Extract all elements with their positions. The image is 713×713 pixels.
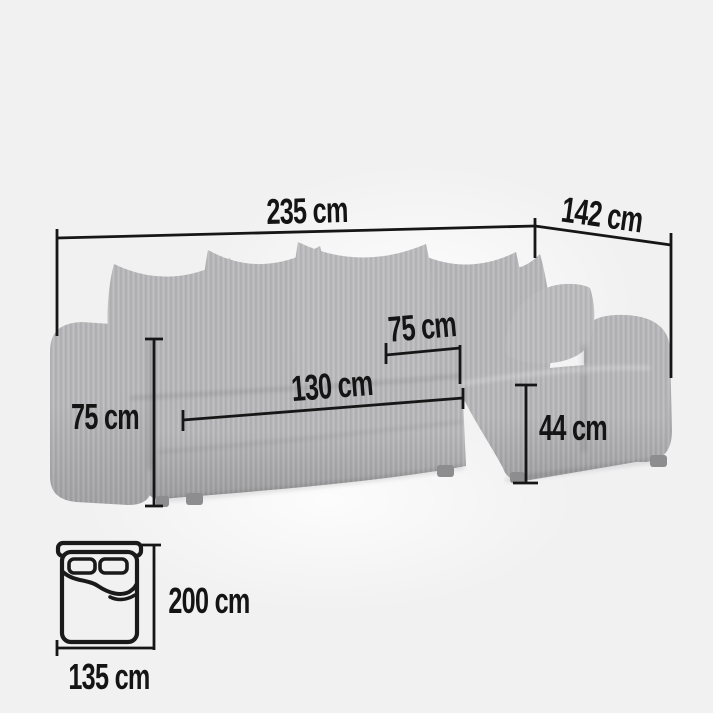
label-sleeping-width: 135 cm [68, 656, 149, 698]
label-sleeping-length: 200 cm [168, 580, 249, 622]
label-seat-depth: 75 cm [386, 303, 457, 351]
label-seat-width: 130 cm [290, 362, 374, 410]
diagram-canvas [0, 0, 713, 713]
label-seat-height: 44 cm [539, 407, 607, 449]
sleeping-area-bed-icon [58, 543, 141, 642]
label-overall-width: 235 cm [266, 189, 348, 233]
label-overall-height: 75 cm [71, 396, 139, 438]
dimension-diagram: 235 cm 142 cm 75 cm 130 cm 75 cm 44 cm 2… [0, 0, 713, 713]
